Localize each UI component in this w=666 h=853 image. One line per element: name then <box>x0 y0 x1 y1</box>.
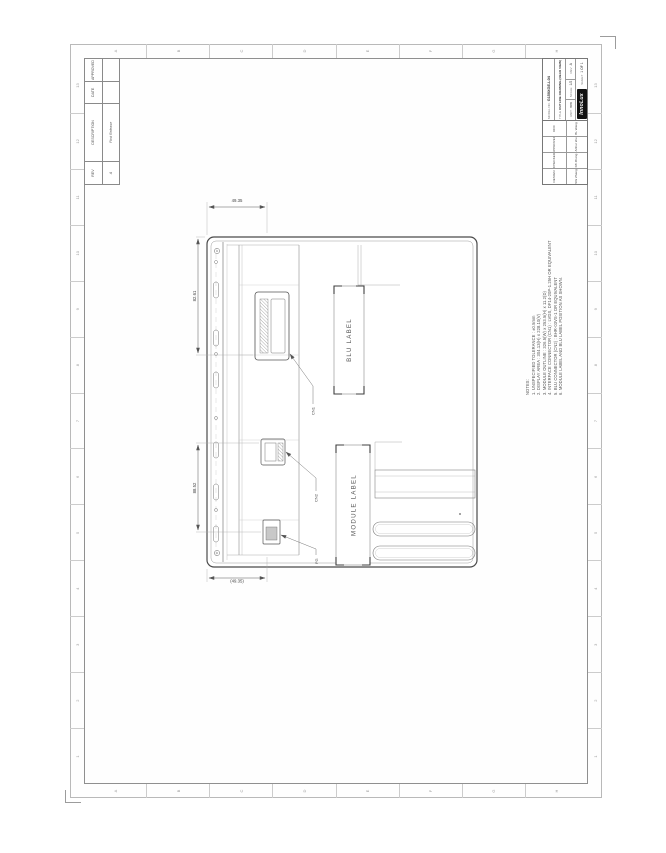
leader-2-label: CN2 <box>314 493 319 502</box>
dim-c: 88.52 <box>192 482 197 493</box>
leader-3-label: FG <box>314 558 319 564</box>
module-label-box: MODULE LABEL <box>336 445 370 565</box>
page-canvas: 12345678910111213 12345678910111213 ABCD… <box>0 0 666 853</box>
blu-label-box: BLU LABEL <box>334 286 364 394</box>
dim-b: 82.61 <box>192 290 197 301</box>
leader-1-label: CN1 <box>311 406 316 415</box>
dim-a: 49.35 <box>232 198 243 203</box>
drawing-sheet: 12345678910111213 12345678910111213 ABCD… <box>70 44 602 798</box>
corner-mark-top-right <box>600 36 616 49</box>
module-drawing-svg: MODULE LABEL BLU LABEL <box>70 44 602 798</box>
corner-mark-bottom-left <box>65 790 81 803</box>
module-label-text: MODULE LABEL <box>351 474 358 536</box>
dim-d: (49.35) <box>230 579 244 584</box>
blu-label-text: BLU LABEL <box>346 318 353 362</box>
